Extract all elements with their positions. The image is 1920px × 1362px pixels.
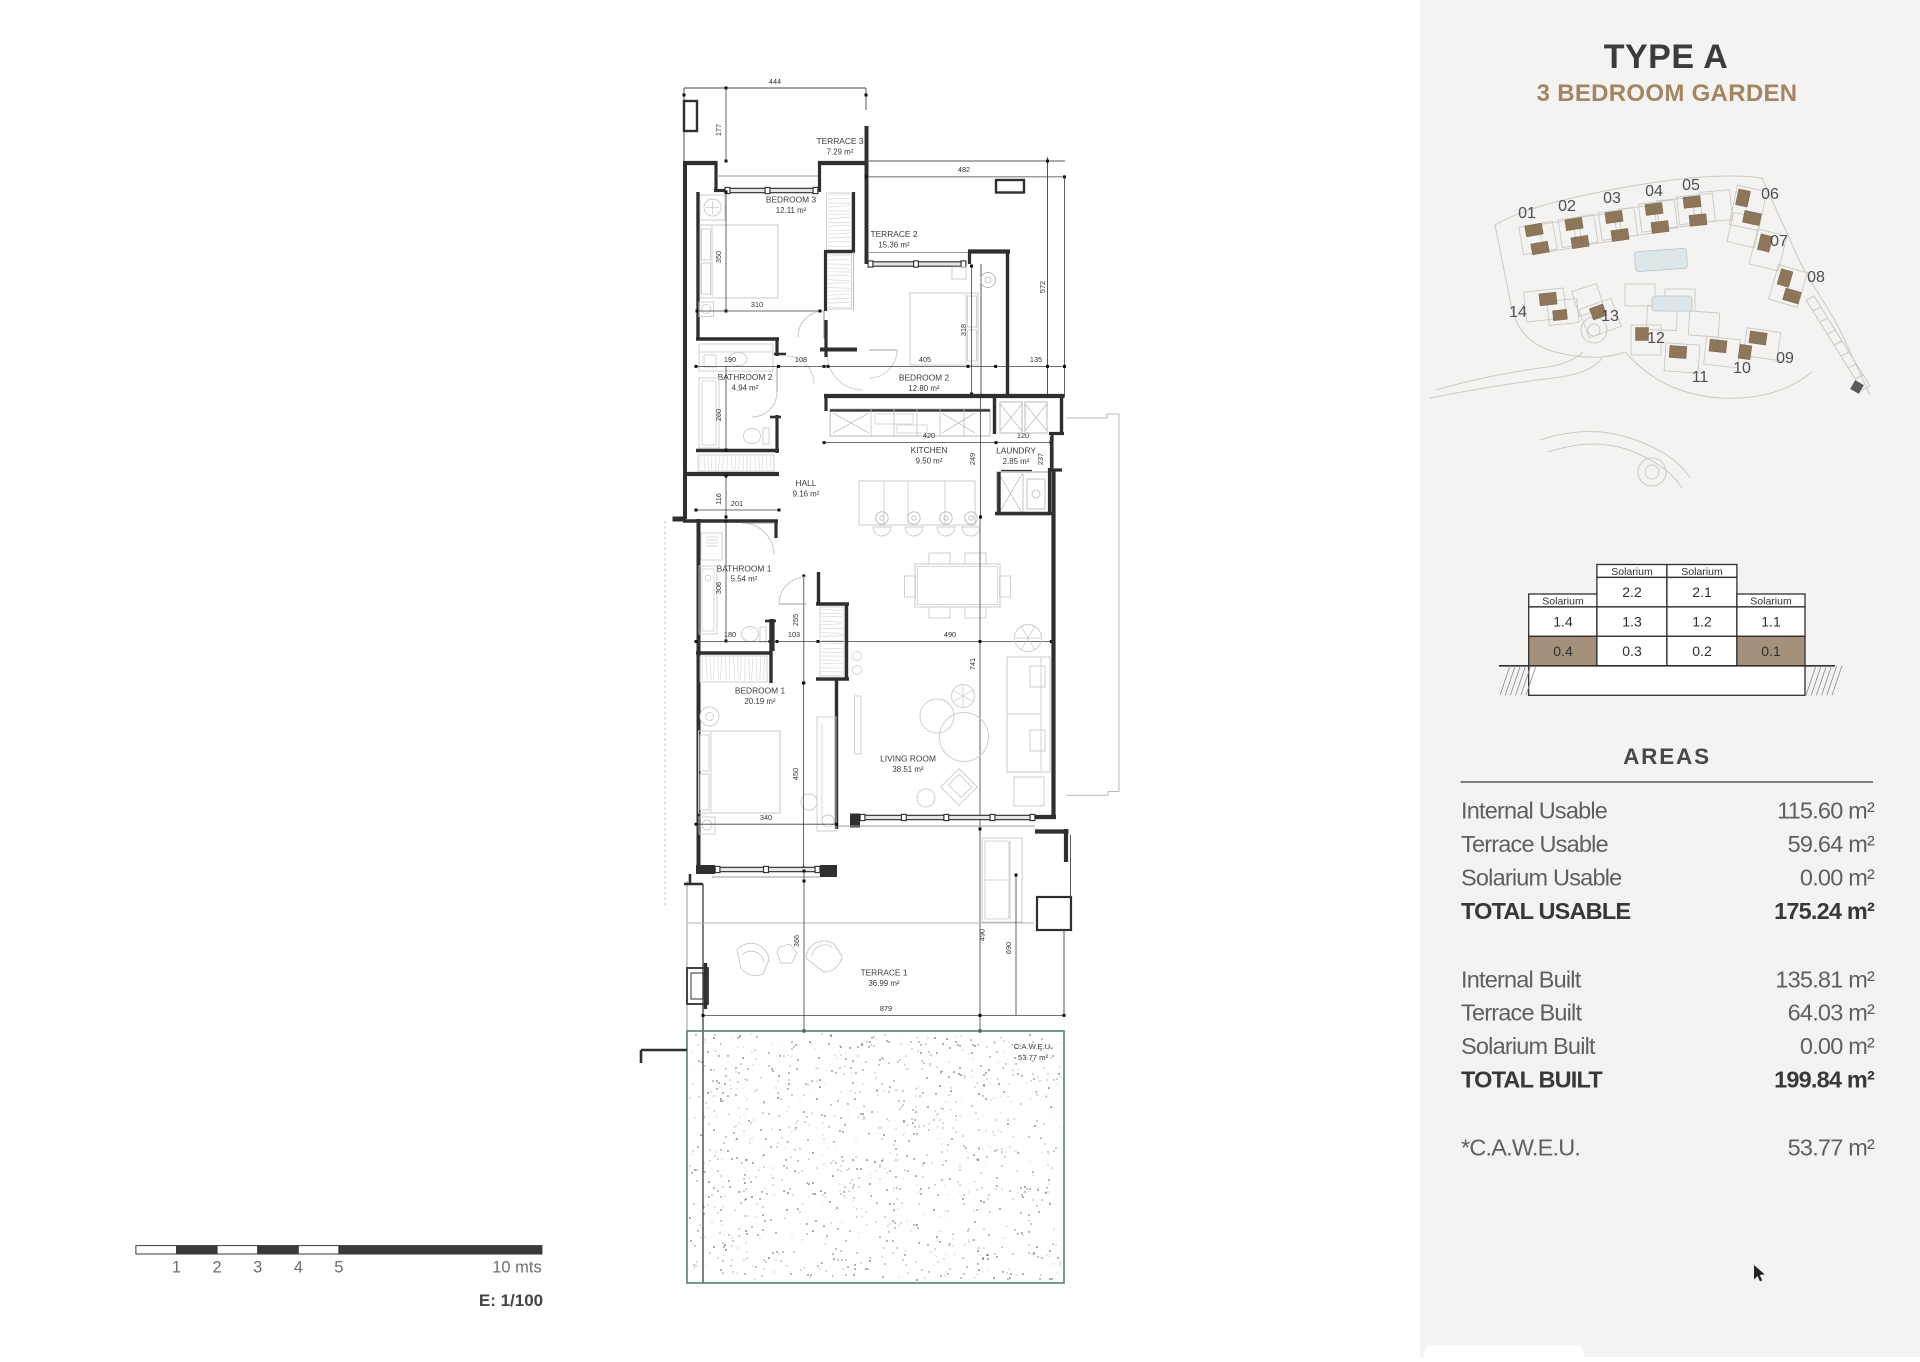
svg-text:175.24 m²: 175.24 m² xyxy=(1774,898,1875,924)
svg-text:38.51 m²: 38.51 m² xyxy=(892,765,924,774)
svg-text:TERRACE 3: TERRACE 3 xyxy=(816,136,863,146)
svg-text:120: 120 xyxy=(1017,431,1029,440)
svg-text:AREAS: AREAS xyxy=(1623,744,1711,769)
svg-text:E: 1/100: E: 1/100 xyxy=(479,1291,543,1310)
svg-text:0.1: 0.1 xyxy=(1761,643,1781,659)
svg-text:1.4: 1.4 xyxy=(1553,614,1573,630)
svg-text:444: 444 xyxy=(769,77,781,86)
svg-text:Solarium: Solarium xyxy=(1542,596,1584,608)
svg-text:13: 13 xyxy=(1601,308,1619,325)
svg-text:TYPE A: TYPE A xyxy=(1604,38,1729,76)
svg-text:04: 04 xyxy=(1645,183,1663,200)
svg-text:4: 4 xyxy=(294,1259,303,1277)
svg-text:4.94 m²: 4.94 m² xyxy=(732,384,759,393)
svg-text:Terrace Usable: Terrace Usable xyxy=(1461,831,1609,857)
svg-text:879: 879 xyxy=(880,1004,892,1013)
svg-text:450: 450 xyxy=(791,768,800,780)
svg-text:7.29 m²: 7.29 m² xyxy=(827,148,854,157)
svg-text:741: 741 xyxy=(968,658,977,670)
svg-text:340: 340 xyxy=(760,813,772,822)
svg-text:03: 03 xyxy=(1603,190,1621,207)
svg-text:BEDROOM 3: BEDROOM 3 xyxy=(766,195,817,205)
svg-text:10 mts: 10 mts xyxy=(492,1259,542,1277)
svg-text:0.00 m²: 0.00 m² xyxy=(1800,865,1875,891)
svg-text:Internal Built: Internal Built xyxy=(1461,967,1582,993)
svg-text:3: 3 xyxy=(253,1259,262,1277)
svg-text:0.4: 0.4 xyxy=(1553,643,1573,659)
svg-text:15.36 m²: 15.36 m² xyxy=(878,241,910,250)
svg-text:249: 249 xyxy=(968,453,977,465)
svg-text:180: 180 xyxy=(724,630,736,639)
svg-text:53.77 m²: 53.77 m² xyxy=(1788,1134,1875,1160)
svg-text:2: 2 xyxy=(213,1259,222,1277)
svg-text:1: 1 xyxy=(172,1259,181,1277)
svg-text:135.81 m²: 135.81 m² xyxy=(1775,967,1875,993)
svg-text:HALL: HALL xyxy=(796,478,817,488)
svg-text:2.85 m²: 2.85 m² xyxy=(1003,457,1030,466)
svg-text:TOTAL BUILT: TOTAL BUILT xyxy=(1461,1067,1603,1093)
svg-text:0.00 m²: 0.00 m² xyxy=(1800,1033,1875,1059)
svg-text:255: 255 xyxy=(791,614,800,626)
svg-text:08: 08 xyxy=(1807,269,1825,286)
svg-text:59.64 m²: 59.64 m² xyxy=(1788,831,1875,857)
svg-text:Solarium Built: Solarium Built xyxy=(1461,1033,1596,1059)
svg-text:BEDROOM 2: BEDROOM 2 xyxy=(899,373,950,383)
svg-text:11: 11 xyxy=(1692,369,1709,386)
svg-text:116: 116 xyxy=(714,493,723,505)
svg-text:BEDROOM 1: BEDROOM 1 xyxy=(735,686,786,696)
svg-text:318: 318 xyxy=(959,324,968,336)
svg-text:199.84 m²: 199.84 m² xyxy=(1774,1067,1875,1093)
svg-text:115.60 m²: 115.60 m² xyxy=(1777,798,1875,824)
svg-text:177: 177 xyxy=(714,124,723,136)
svg-text:2.1: 2.1 xyxy=(1692,584,1712,600)
svg-text:KITCHEN: KITCHEN xyxy=(911,445,948,455)
svg-text:12: 12 xyxy=(1647,330,1665,347)
svg-text:5: 5 xyxy=(334,1259,343,1277)
svg-text:0.2: 0.2 xyxy=(1692,643,1712,659)
svg-text:TERRACE 1: TERRACE 1 xyxy=(860,968,907,978)
svg-text:TERRACE 2: TERRACE 2 xyxy=(870,229,917,239)
svg-text:366: 366 xyxy=(792,935,801,947)
svg-text:BATHROOM 1: BATHROOM 1 xyxy=(717,564,772,574)
svg-text:2.2: 2.2 xyxy=(1622,584,1642,600)
svg-text:Solarium Usable: Solarium Usable xyxy=(1461,865,1622,891)
svg-text:53.77 m²: 53.77 m² xyxy=(1018,1053,1048,1062)
svg-text:5.54 m²: 5.54 m² xyxy=(731,575,758,584)
svg-text:103: 103 xyxy=(788,630,800,639)
svg-text:Solarium: Solarium xyxy=(1611,566,1653,578)
svg-text:*C.A.W.E.U.: *C.A.W.E.U. xyxy=(1461,1134,1580,1160)
svg-text:490: 490 xyxy=(944,630,956,639)
svg-text:306: 306 xyxy=(714,582,723,594)
svg-text:690: 690 xyxy=(1004,942,1013,954)
svg-text:572: 572 xyxy=(1038,281,1047,293)
svg-text:LAUNDRY: LAUNDRY xyxy=(996,446,1036,456)
svg-text:LIVING ROOM: LIVING ROOM xyxy=(880,754,936,764)
svg-text:12.80 m²: 12.80 m² xyxy=(908,384,940,393)
svg-text:9.50 m²: 9.50 m² xyxy=(916,457,943,466)
svg-text:C.A.W.E.U.: C.A.W.E.U. xyxy=(1014,1042,1052,1051)
svg-text:12.11 m²: 12.11 m² xyxy=(776,206,807,215)
svg-text:36.99 m²: 36.99 m² xyxy=(868,979,900,988)
svg-text:310: 310 xyxy=(751,300,763,309)
svg-text:05: 05 xyxy=(1682,177,1700,194)
svg-text:0.3: 0.3 xyxy=(1622,643,1642,659)
svg-text:14: 14 xyxy=(1509,304,1527,321)
svg-text:1.1: 1.1 xyxy=(1761,614,1781,630)
svg-text:1.2: 1.2 xyxy=(1692,614,1712,630)
svg-text:TOTAL USABLE: TOTAL USABLE xyxy=(1461,898,1630,924)
svg-text:405: 405 xyxy=(919,355,931,364)
svg-text:01: 01 xyxy=(1518,205,1536,222)
svg-text:Internal Usable: Internal Usable xyxy=(1461,798,1608,824)
svg-text:Terrace Built: Terrace Built xyxy=(1461,1000,1582,1026)
svg-text:20.19 m²: 20.19 m² xyxy=(744,697,776,706)
svg-text:201: 201 xyxy=(731,499,743,508)
svg-text:420: 420 xyxy=(923,431,935,440)
svg-text:64.03 m²: 64.03 m² xyxy=(1788,1000,1875,1026)
svg-text:Solarium: Solarium xyxy=(1681,566,1723,578)
svg-text:350: 350 xyxy=(714,251,723,263)
svg-text:10: 10 xyxy=(1733,360,1751,377)
svg-text:9.16 m²: 9.16 m² xyxy=(793,490,820,499)
svg-text:1.3: 1.3 xyxy=(1622,614,1642,630)
svg-text:3 BEDROOM GARDEN: 3 BEDROOM GARDEN xyxy=(1537,80,1798,107)
svg-text:02: 02 xyxy=(1558,198,1576,215)
svg-text:490: 490 xyxy=(978,929,987,941)
svg-text:07: 07 xyxy=(1770,233,1788,250)
svg-text:237: 237 xyxy=(1036,453,1045,465)
svg-text:108: 108 xyxy=(795,355,807,364)
svg-text:260: 260 xyxy=(714,409,723,421)
svg-text:482: 482 xyxy=(958,165,970,174)
svg-text:190: 190 xyxy=(724,355,736,364)
svg-text:135: 135 xyxy=(1030,355,1042,364)
svg-text:06: 06 xyxy=(1761,186,1779,203)
svg-text:Solarium: Solarium xyxy=(1750,596,1792,608)
svg-text:09: 09 xyxy=(1776,350,1794,367)
